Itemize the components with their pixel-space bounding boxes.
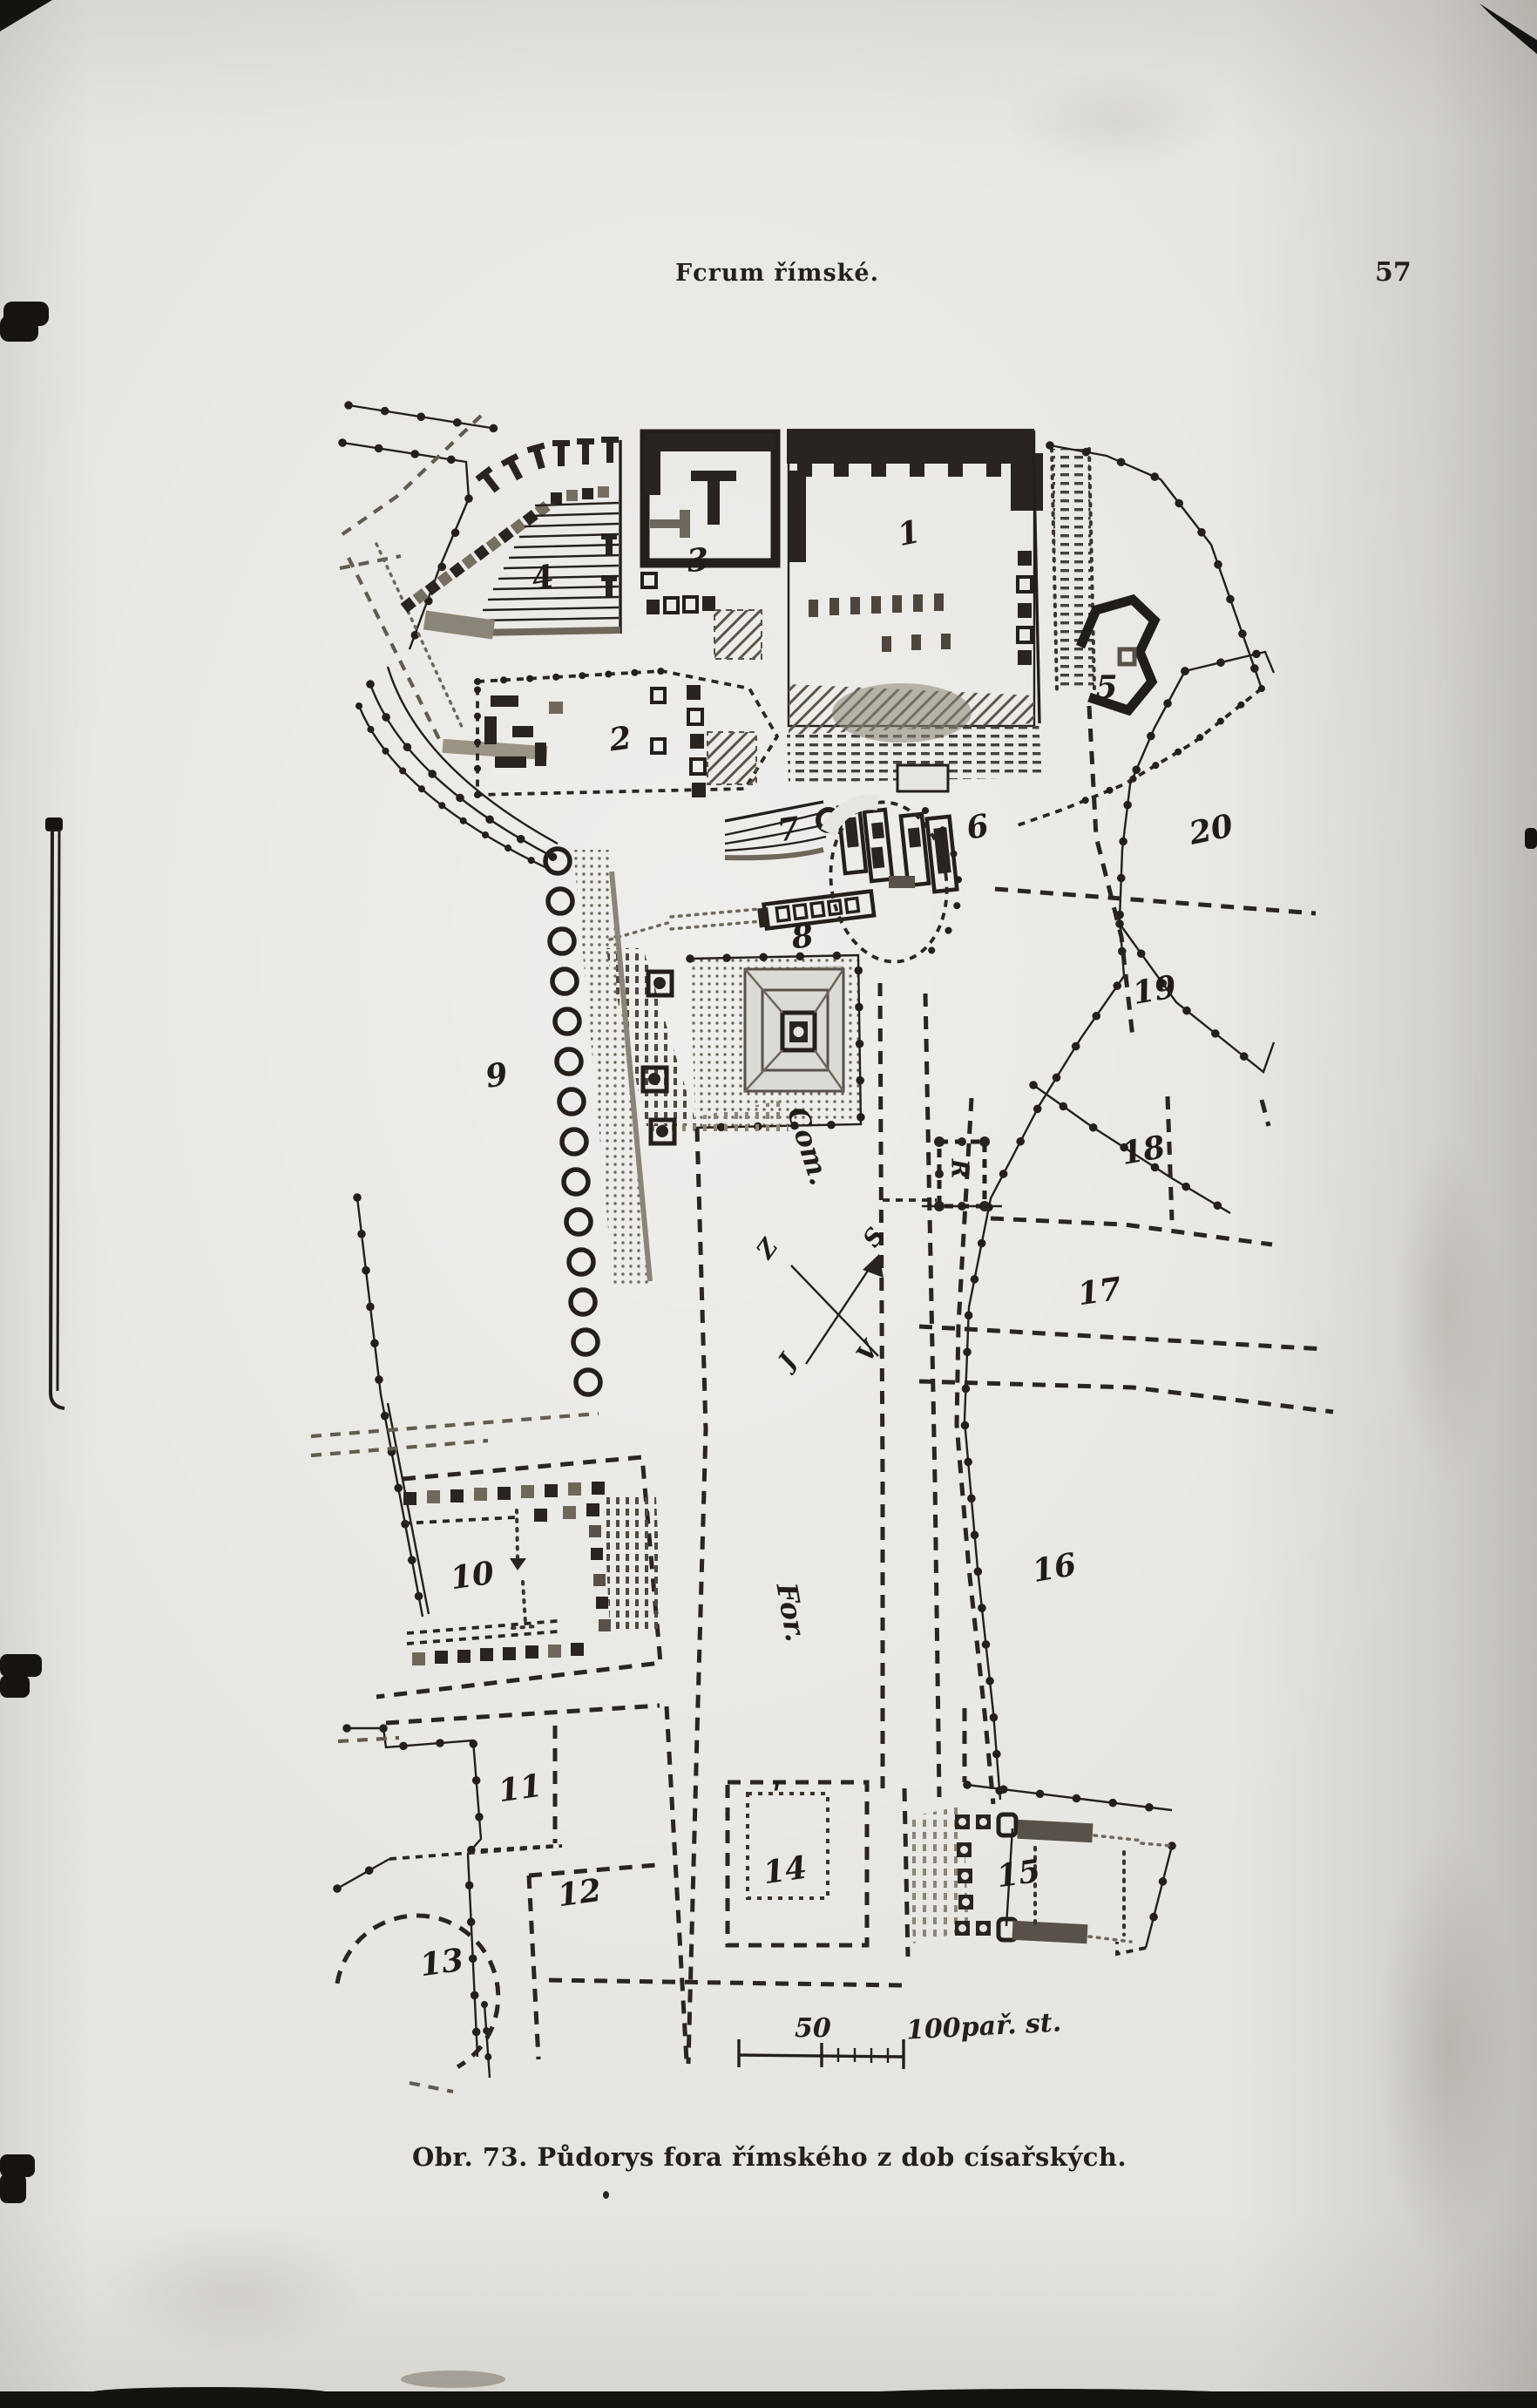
scanned-book-page: Fcrum římské. 57 [0,0,1537,2408]
scan-artifacts [0,0,1537,2408]
